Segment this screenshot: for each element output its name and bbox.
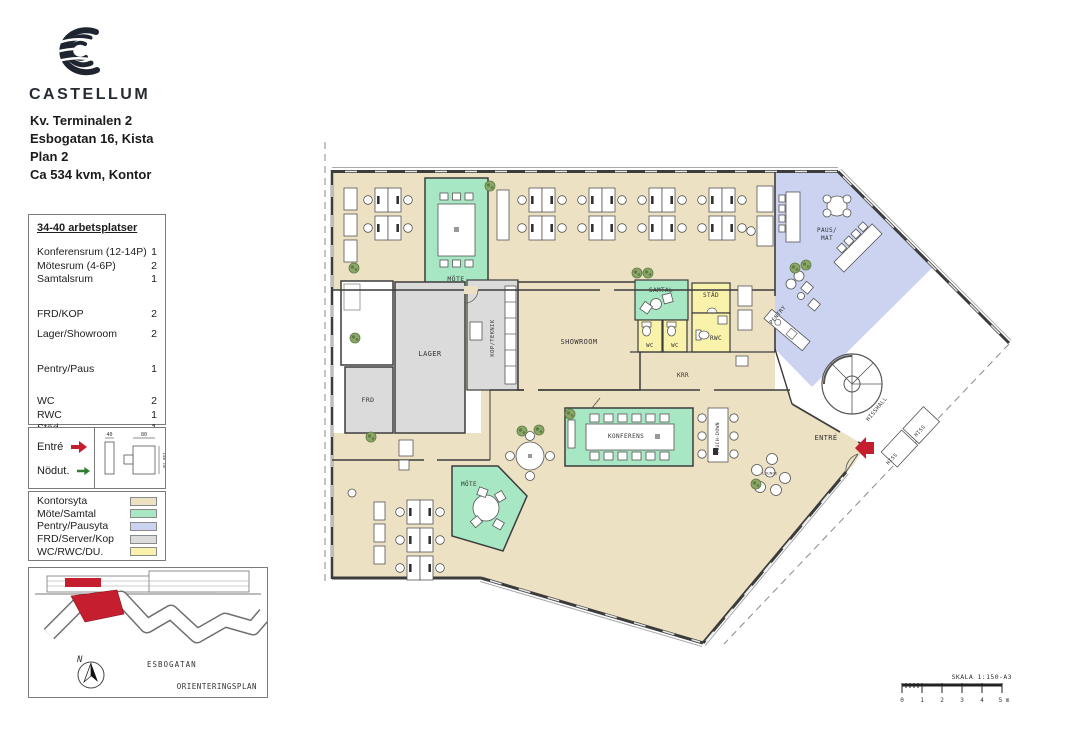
- street-label: ESBOGATAN: [147, 660, 197, 669]
- nodut-row: Nödut.: [37, 459, 94, 483]
- legend-row: Pentry/Pausyta: [37, 520, 157, 533]
- highlighted-elevation-section: [65, 578, 101, 587]
- program-row-count: 2: [151, 308, 157, 322]
- lift-lobby: HISSHALL HISS HISS: [865, 396, 939, 467]
- legend-row: WC/RWC/DU.: [37, 545, 157, 558]
- dim-label: 40: [106, 432, 112, 438]
- room-label-showroom: SHOWROOM: [561, 338, 598, 346]
- building-silhouette: [49, 590, 265, 636]
- castellum-logo-icon: [44, 18, 110, 86]
- program-row-label: Konferensrum (12-14P): [37, 246, 147, 260]
- room-konferens: KONFERENS: [565, 398, 693, 466]
- legend-row: Kontorsyta: [37, 495, 157, 508]
- program-row: Pentry/Paus1: [37, 363, 157, 377]
- address-line: Kv. Terminalen 2: [30, 112, 154, 130]
- orientation-plan-drawing: N ESBOGATAN ORIENTERINGSPLAN: [29, 568, 267, 697]
- main-floor-plan: MÖTE FRD LAGER KOP/TEKNIK SHOWROOM SAMTA…: [315, 130, 1020, 655]
- legend-row: FRD/Server/Kop: [37, 533, 157, 546]
- program-row-count: 1: [151, 409, 157, 423]
- scale-bar: SKALA 1:150-A3 0 1 2 3 4 5 m: [888, 668, 1023, 713]
- floorplan-document: { "header": { "brand": "CASTELLUM", "add…: [0, 0, 1067, 754]
- room-unlabeled-storage: [341, 281, 393, 379]
- program-row-count: 2: [151, 260, 157, 274]
- program-row: Samtalsrum1: [37, 273, 157, 287]
- room-label-wc2: WC: [671, 343, 678, 349]
- room-kop-teknik: KOP/TEKNIK: [467, 280, 518, 390]
- nodut-arrow-icon: [77, 466, 90, 476]
- program-row-label: RWC: [37, 409, 62, 423]
- address-line: Ca 534 kvm, Kontor: [30, 166, 154, 184]
- north-compass: N: [76, 655, 104, 688]
- legend-swatch-kontorsyta: [130, 497, 157, 506]
- program-row: FRD/KOP2: [37, 308, 157, 322]
- orientation-caption: ORIENTERINGSPLAN: [177, 682, 257, 691]
- dim-label: 140 cm: [162, 452, 165, 468]
- area-color-legend: Kontorsyta Möte/Samtal Pentry/Pausyta FR…: [28, 491, 166, 561]
- legend-label: FRD/Server/Kop: [37, 533, 114, 545]
- room-label-konferens: KONFERENS: [608, 433, 644, 440]
- legend-label: WC/RWC/DU.: [37, 546, 103, 558]
- room-wc2: WC: [663, 320, 687, 352]
- room-stad: STÄD: [692, 283, 730, 313]
- scale-tick: 2: [940, 697, 944, 704]
- touchdown-desk: TOUCH-DOWN: [698, 408, 738, 462]
- entrance-symbols-legend: Entré Nödut. 40 80 140 cm: [28, 427, 166, 489]
- north-label: N: [76, 655, 83, 665]
- legend-row: Möte/Samtal: [37, 508, 157, 521]
- legend-label: Kontorsyta: [37, 495, 87, 507]
- room-wc1: WC: [638, 320, 662, 352]
- scale-tick: 3: [960, 697, 964, 704]
- dim-label: 80: [141, 432, 147, 438]
- scale-label: SKALA 1:150-A3: [952, 673, 1012, 681]
- furniture-dimension-symbol: 40 80 140 cm: [95, 428, 165, 488]
- spiral-stair: [822, 354, 882, 414]
- program-row-count: 2: [151, 395, 157, 409]
- room-label-krr: KRR: [677, 372, 689, 379]
- orientation-plan: N ESBOGATAN ORIENTERINGSPLAN: [28, 567, 268, 698]
- program-row-label: WC: [37, 395, 55, 409]
- scale-tick: 1: [920, 697, 924, 704]
- entre-arrow-icon: [71, 441, 87, 453]
- program-row-label: Pentry/Paus: [37, 363, 94, 377]
- room-label-wc1: WC: [646, 343, 653, 349]
- legend-label: Pentry/Pausyta: [37, 520, 108, 532]
- scale-tick: 0: [900, 697, 904, 704]
- room-label-rwc: RWC: [710, 335, 722, 342]
- room-program-table: 34-40 arbetsplatser Konferensrum (12-14P…: [28, 214, 166, 425]
- room-label-stad: STÄD: [703, 292, 719, 299]
- room-frd: FRD: [345, 367, 393, 433]
- legend-swatch-mote-samtal: [130, 509, 157, 518]
- room-mote-top: MÖTE: [425, 178, 488, 288]
- program-row-label: Samtalsrum: [37, 273, 93, 287]
- nodut-label: Nödut.: [37, 465, 69, 477]
- room-label-lager: LAGER: [418, 350, 441, 358]
- program-row-count: 2: [151, 328, 157, 342]
- address-line: Esbogatan 16, Kista: [30, 130, 154, 148]
- legend-swatch-wc: [130, 547, 157, 556]
- program-row: Konferensrum (12-14P)1: [37, 246, 157, 260]
- entre-row: Entré: [37, 435, 94, 459]
- entrance-labels: Entré Nödut.: [29, 428, 95, 488]
- room-label-entre: ENTRÉ: [814, 433, 837, 442]
- program-row: Lager/Showroom2: [37, 328, 157, 342]
- address-block: Kv. Terminalen 2 Esbogatan 16, Kista Pla…: [30, 112, 154, 184]
- address-line: Plan 2: [30, 148, 154, 166]
- program-row: WC2: [37, 395, 157, 409]
- program-row-count: 1: [151, 273, 157, 287]
- legend-swatch-frd: [130, 535, 157, 544]
- room-label-paus1: PAUS/: [817, 227, 837, 234]
- room-label-kop-teknik: KOP/TEKNIK: [490, 319, 496, 356]
- scale-tick: 4: [980, 697, 984, 704]
- room-label-paus2: MAT: [821, 235, 833, 242]
- room-lager: LAGER: [395, 282, 465, 433]
- room-showroom: SHOWROOM: [518, 282, 640, 390]
- program-row: RWC1: [37, 409, 157, 423]
- room-rwc: RWC: [692, 313, 730, 352]
- program-row-label: Mötesrum (4-6P): [37, 260, 116, 274]
- room-label-touchdown: TOUCH-DOWN: [715, 422, 721, 454]
- legend-swatch-pentry: [130, 522, 157, 531]
- highlighted-plan-section: [71, 590, 124, 622]
- room-label-mote-bottom: MÖTE: [461, 481, 477, 488]
- room-samtal: SAMTAL: [635, 280, 688, 320]
- program-row-count: 1: [151, 246, 157, 260]
- program-row-label: Lager/Showroom: [37, 328, 117, 342]
- room-label-lounge: LOUNGE: [762, 472, 777, 476]
- program-row: Mötesrum (4-6P)2: [37, 260, 157, 274]
- brand-wordmark: CASTELLUM: [29, 86, 150, 104]
- building-elevation: [35, 571, 261, 594]
- legend-label: Möte/Samtal: [37, 508, 96, 520]
- program-row-label: FRD/KOP: [37, 308, 84, 322]
- program-row-count: 1: [151, 363, 157, 377]
- program-title: 34-40 arbetsplatser: [37, 222, 157, 234]
- room-label-frd: FRD: [362, 396, 375, 404]
- scale-tick: 5 m: [999, 697, 1010, 704]
- entre-label: Entré: [37, 441, 63, 453]
